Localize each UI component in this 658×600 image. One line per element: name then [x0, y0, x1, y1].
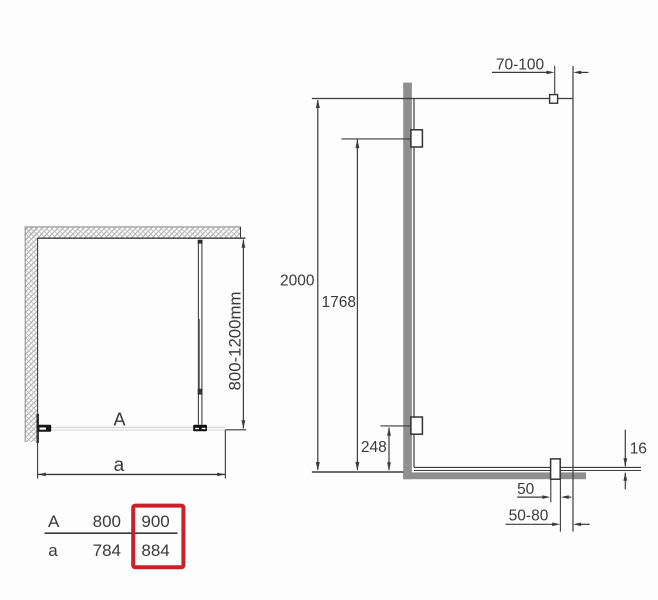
- svg-text:50-80: 50-80: [509, 507, 549, 524]
- svg-text:a: a: [114, 455, 125, 476]
- svg-text:a: a: [48, 541, 58, 560]
- svg-text:784: 784: [93, 541, 121, 560]
- svg-text:50: 50: [517, 481, 535, 498]
- svg-text:A: A: [48, 512, 60, 531]
- svg-text:70-100: 70-100: [496, 57, 545, 74]
- svg-text:248: 248: [361, 439, 387, 456]
- svg-text:900: 900: [141, 512, 169, 531]
- svg-text:2000: 2000: [280, 273, 315, 290]
- svg-text:A: A: [114, 409, 126, 429]
- svg-text:800-1200mm: 800-1200mm: [226, 292, 245, 391]
- svg-text:800: 800: [93, 512, 121, 531]
- svg-text:884: 884: [141, 541, 169, 560]
- svg-text:1768: 1768: [322, 294, 356, 311]
- svg-text:16: 16: [630, 441, 647, 458]
